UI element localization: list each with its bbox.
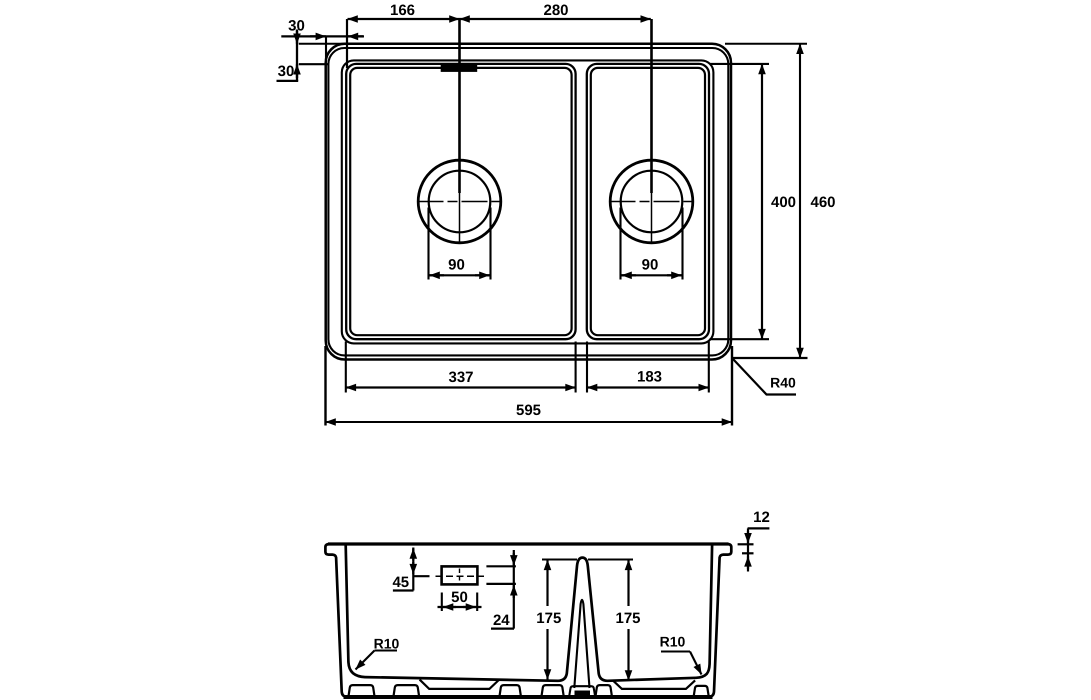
svg-text:R10: R10 [374, 636, 400, 652]
svg-text:400: 400 [771, 194, 796, 211]
svg-text:460: 460 [810, 194, 835, 211]
svg-text:R10: R10 [660, 634, 686, 650]
svg-text:30: 30 [278, 63, 295, 80]
svg-text:337: 337 [448, 369, 473, 386]
svg-text:12: 12 [753, 509, 770, 526]
svg-text:90: 90 [642, 257, 659, 274]
svg-text:280: 280 [543, 2, 568, 19]
svg-text:50: 50 [451, 589, 468, 606]
svg-text:175: 175 [536, 610, 561, 627]
svg-text:R40: R40 [770, 375, 796, 391]
svg-text:45: 45 [392, 574, 409, 591]
svg-text:166: 166 [390, 2, 415, 19]
svg-text:183: 183 [637, 369, 662, 386]
svg-text:175: 175 [615, 610, 640, 627]
svg-text:595: 595 [516, 402, 541, 419]
svg-text:24: 24 [493, 612, 510, 629]
svg-text:90: 90 [448, 257, 465, 274]
